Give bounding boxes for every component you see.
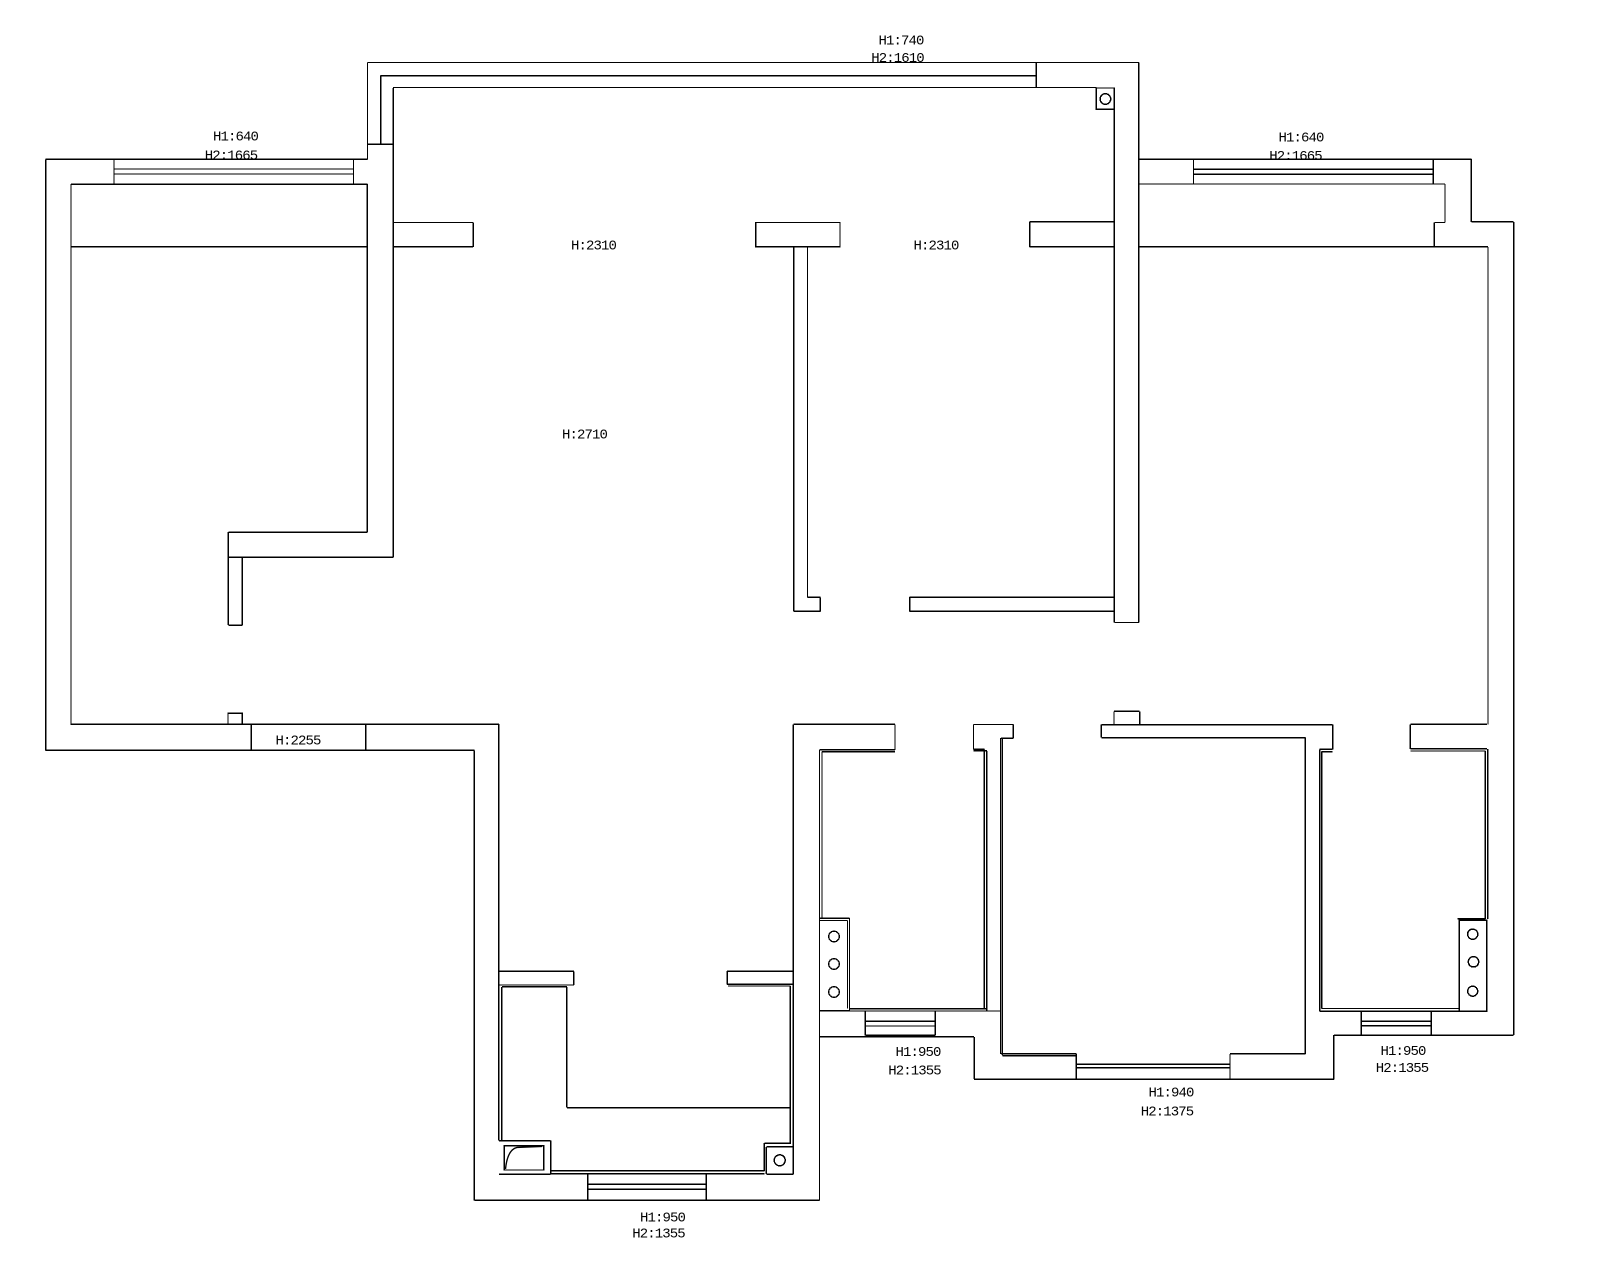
svg-text:H1:640: H1:640 [1278,131,1324,147]
svg-text:H:2255: H:2255 [275,734,321,750]
svg-text:H2:1665: H2:1665 [1269,149,1322,165]
svg-text:H:2710: H:2710 [562,428,608,444]
svg-text:H1:950: H1:950 [640,1211,686,1227]
svg-text:H:2310: H:2310 [571,239,617,255]
svg-text:H2:1355: H2:1355 [1376,1061,1429,1077]
svg-text:H2:1355: H2:1355 [632,1227,685,1243]
svg-text:H:2310: H:2310 [913,239,959,255]
svg-text:H2:1665: H2:1665 [205,149,258,165]
svg-text:H1:950: H1:950 [1380,1044,1426,1060]
svg-text:H1:640: H1:640 [213,130,259,146]
svg-text:H2:1355: H2:1355 [888,1064,941,1080]
svg-text:H1:950: H1:950 [895,1045,941,1061]
svg-text:H2:1375: H2:1375 [1141,1105,1194,1121]
svg-text:H1:740: H1:740 [878,34,924,50]
svg-text:H1:940: H1:940 [1148,1086,1194,1102]
svg-text:H2:1610: H2:1610 [871,51,924,67]
